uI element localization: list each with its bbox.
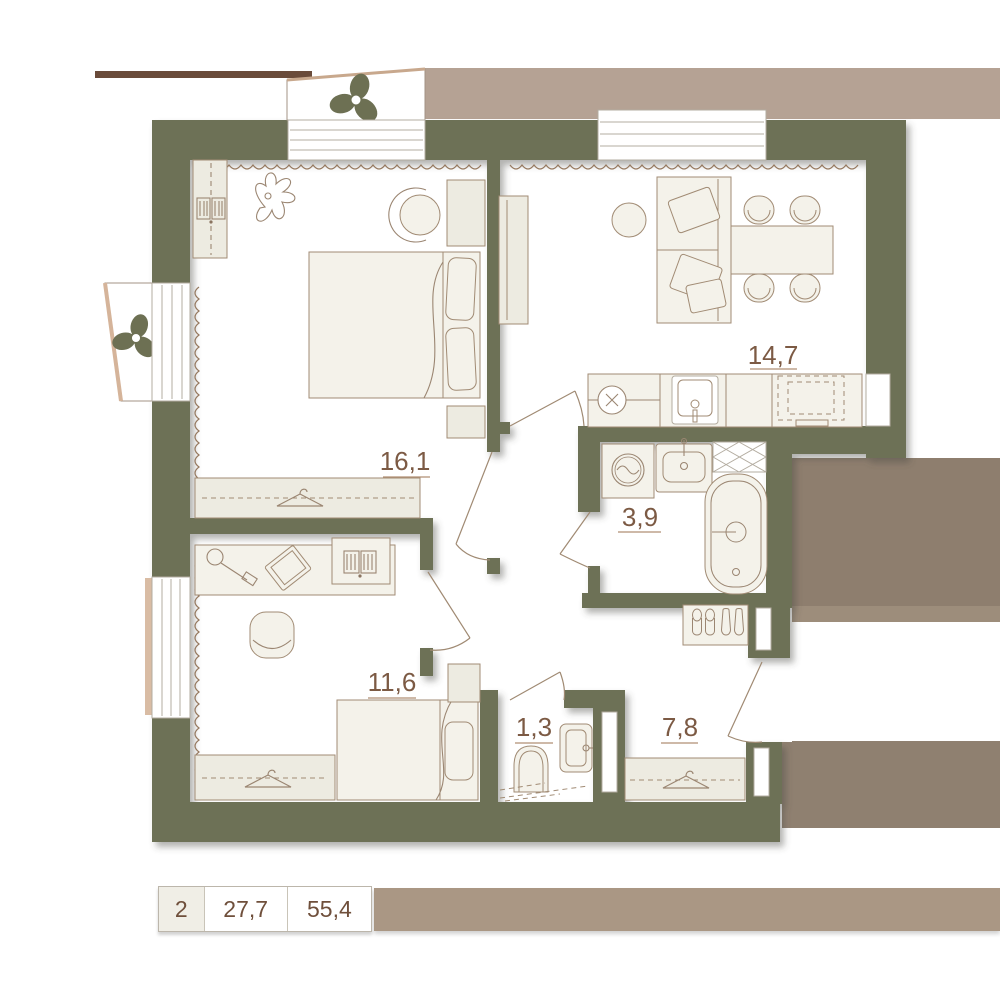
kitchen-sink [672,376,718,424]
vent-shaft-hatch [713,442,766,472]
washing-machine-icon [602,444,654,498]
room-area-label: 1,3 [516,712,552,742]
total-area: 55,4 [288,887,371,931]
apartment-summary-table: 2 27,7 55,4 [158,886,372,932]
wardrobe [195,755,335,800]
shoe-rack [683,605,748,645]
window-living-top [598,110,766,160]
dining-table [731,226,833,274]
floor-plan-page: 16,1 [0,0,1000,1000]
bed-single [337,700,478,800]
pillow [445,327,476,390]
side-table [612,203,646,237]
bed-double [309,252,480,398]
kitchen-counter [588,374,862,427]
nightstand [447,406,485,438]
window-balcony-left-band [152,283,190,401]
nightstand [447,180,485,246]
nightstand [448,664,480,702]
balcony-left [105,283,159,401]
room-area-label: 7,8 [662,712,698,742]
tall-cabinet [499,196,528,324]
room-area-label: 11,6 [368,667,417,697]
wardrobe [195,478,420,518]
room-area-label: 16,1 [380,446,431,476]
pillow [445,257,476,320]
pillow [445,722,473,780]
window-balcony-top-band [288,120,425,160]
window-kitchen-right [866,374,890,426]
sofa [657,177,731,323]
wardrobe [625,758,745,800]
window-left-lower [152,577,190,718]
bathtub [705,474,767,594]
floor-plan-drawing: 16,1 [0,0,1000,1000]
rooms-count: 2 [159,887,205,931]
wc-sink [560,724,593,772]
living-area: 27,7 [205,887,288,931]
room-area-label: 3,9 [622,502,658,532]
bathroom-sink [656,439,712,493]
desk-chair [250,612,294,658]
radiator-icon [332,538,390,584]
room-area-label: 14,7 [748,340,799,370]
balcony-top [287,69,425,126]
